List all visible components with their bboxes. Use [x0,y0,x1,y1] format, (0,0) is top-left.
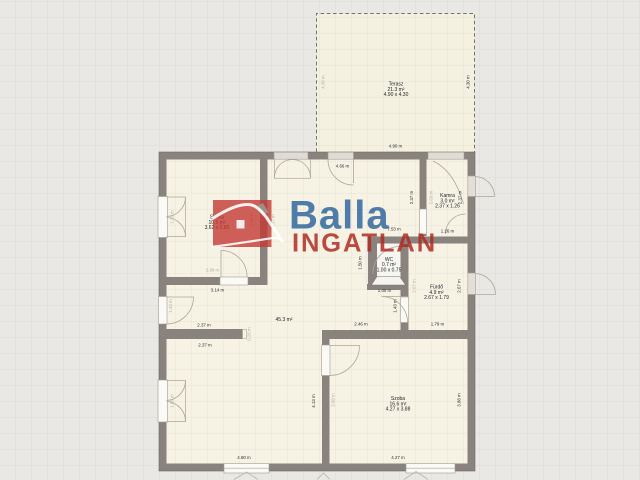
svg-text:1.79 m: 1.79 m [431,322,445,327]
svg-text:1.00 x 0.75: 1.00 x 0.75 [377,267,402,273]
svg-text:3.88 m: 3.88 m [331,393,336,407]
svg-text:2.37 m: 2.37 m [409,190,414,204]
svg-text:4.30 m: 4.30 m [466,75,471,89]
svg-text:4.90 m: 4.90 m [389,144,403,149]
svg-text:1.26 m: 1.26 m [441,229,455,234]
svg-text:4.27 m: 4.27 m [391,455,405,460]
svg-text:2.37 m: 2.37 m [197,323,211,328]
svg-text:1.50 m: 1.50 m [358,256,363,270]
svg-text:4.13 m: 4.13 m [311,394,316,408]
svg-text:2.37 m: 2.37 m [458,190,463,204]
svg-text:3.88 m: 3.88 m [457,393,462,407]
svg-text:1.00 m: 1.00 m [378,288,392,293]
svg-text:1.43 m: 1.43 m [168,299,173,313]
svg-text:2.37 m: 2.37 m [198,343,212,348]
svg-text:1.66 m: 1.66 m [170,394,175,408]
svg-text:2.89 m: 2.89 m [206,268,220,273]
svg-text:2.03 m: 2.03 m [429,190,434,204]
svg-text:4.66 m: 4.66 m [336,164,350,169]
svg-text:3.14 m: 3.14 m [211,288,225,293]
svg-text:INGATLAN: INGATLAN [292,230,437,258]
svg-text:1.28 m: 1.28 m [170,210,175,224]
svg-text:4.90 x 4.30: 4.90 x 4.30 [384,92,409,98]
svg-text:0.25 m: 0.25 m [247,327,252,341]
svg-text:4.27 x 3.88: 4.27 x 3.88 [386,407,411,413]
svg-text:2.67 x 1.79: 2.67 x 1.79 [424,295,449,301]
svg-text:45.3 m²: 45.3 m² [276,317,293,323]
svg-text:2.67 m: 2.67 m [457,279,462,293]
svg-text:4.80 m: 4.80 m [237,455,251,460]
svg-text:2.37 x 1.26: 2.37 x 1.26 [435,204,460,210]
svg-text:4.30 m: 4.30 m [321,75,326,89]
svg-text:2.67 m: 2.67 m [412,279,417,293]
svg-text:1.43 m: 1.43 m [393,299,398,313]
svg-text:2.46 m: 2.46 m [354,322,368,327]
